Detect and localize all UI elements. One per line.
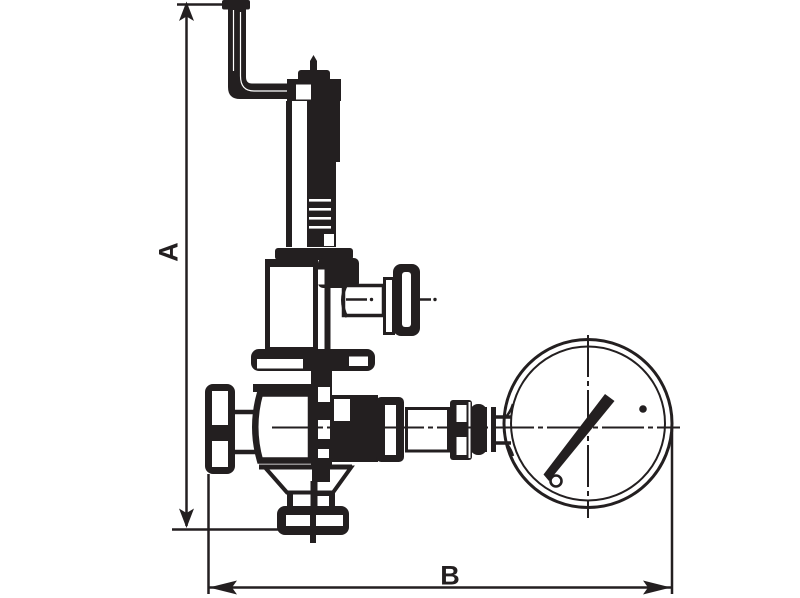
svg-text:B: B — [440, 561, 460, 591]
svg-text:A: A — [154, 242, 184, 262]
